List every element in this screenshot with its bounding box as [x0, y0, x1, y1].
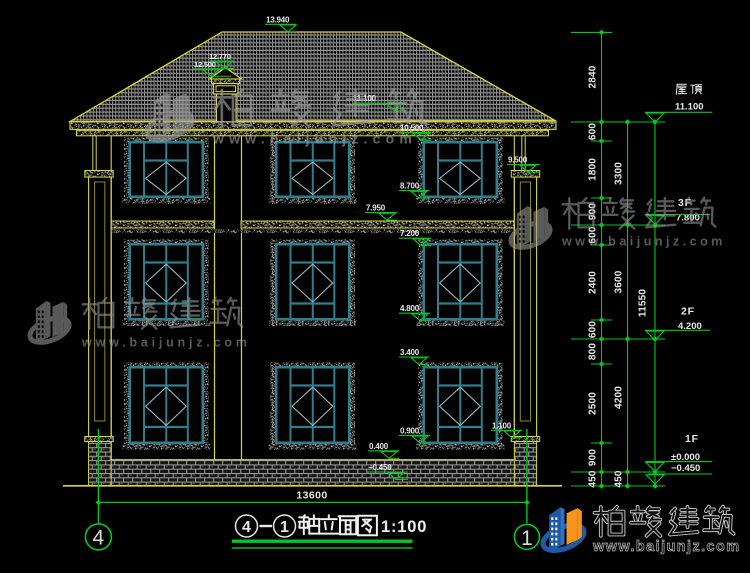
svg-text:3F: 3F: [678, 197, 692, 209]
svg-text:2F: 2F: [681, 306, 695, 318]
svg-text:600: 600: [588, 321, 599, 339]
svg-text:4: 4: [93, 527, 105, 550]
svg-text:600: 600: [588, 123, 599, 141]
svg-text:13.940: 13.940: [266, 15, 290, 24]
svg-text:0.900: 0.900: [400, 426, 420, 435]
svg-text:−0.450: −0.450: [671, 463, 700, 474]
svg-text:3600: 3600: [614, 270, 625, 293]
svg-text:1:100: 1:100: [381, 518, 427, 536]
svg-text:3300: 3300: [614, 162, 625, 185]
svg-text:2500: 2500: [588, 392, 599, 415]
svg-text:4.800: 4.800: [400, 304, 420, 313]
svg-text:1.100: 1.100: [492, 421, 512, 430]
svg-text:12.500: 12.500: [194, 60, 216, 69]
svg-text:3.400: 3.400: [400, 348, 420, 357]
svg-text:900: 900: [588, 449, 599, 467]
svg-text:1800: 1800: [588, 158, 599, 181]
svg-text:1: 1: [521, 527, 533, 550]
svg-text:800: 800: [588, 343, 599, 361]
svg-text:9.500: 9.500: [508, 156, 528, 165]
svg-text:11.100: 11.100: [675, 102, 704, 113]
svg-text:1: 1: [280, 519, 289, 536]
svg-text:−0.450: −0.450: [368, 463, 392, 472]
svg-text:0.400: 0.400: [369, 442, 389, 451]
svg-text:8.700: 8.700: [400, 182, 420, 191]
svg-text:13600: 13600: [296, 489, 327, 501]
svg-text:4: 4: [242, 519, 251, 536]
svg-text:11550: 11550: [638, 289, 649, 317]
svg-text:450: 450: [614, 470, 625, 488]
svg-text:1F: 1F: [685, 433, 699, 445]
svg-text:www.baijunjz.com: www.baijunjz.com: [561, 235, 726, 249]
svg-text:7.950: 7.950: [366, 204, 386, 213]
svg-text:www.baijunjz.com: www.baijunjz.com: [592, 539, 741, 555]
svg-text:www.baijunjz.com: www.baijunjz.com: [212, 131, 417, 147]
svg-text:2840: 2840: [588, 65, 599, 88]
svg-text:4200: 4200: [614, 386, 625, 409]
svg-text:2400: 2400: [588, 271, 599, 294]
svg-text:www.baijunjz.com: www.baijunjz.com: [81, 336, 251, 350]
svg-text:450: 450: [588, 470, 599, 488]
svg-text:7.200: 7.200: [400, 229, 420, 238]
